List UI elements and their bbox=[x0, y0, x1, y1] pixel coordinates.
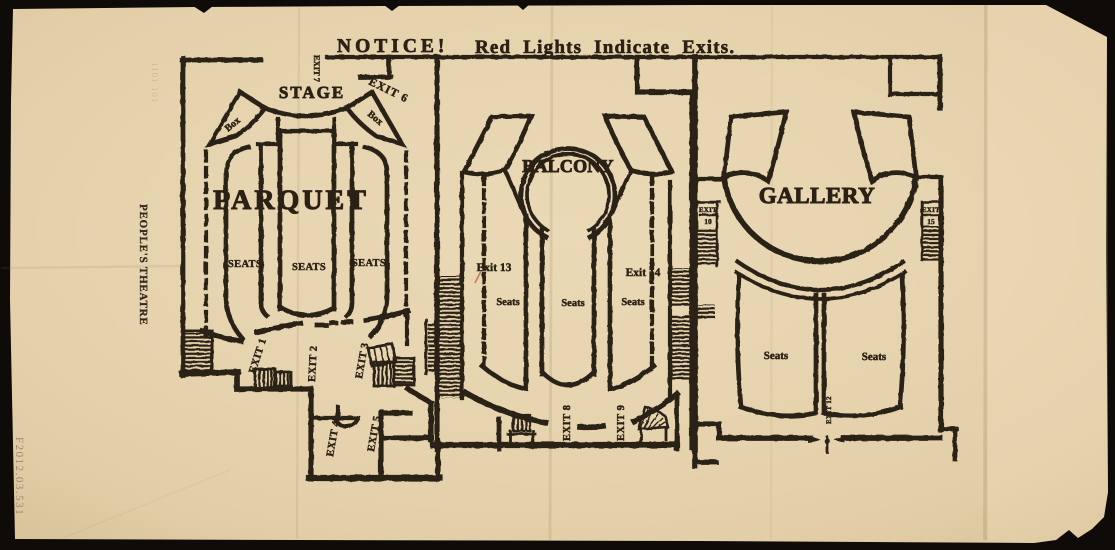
svg-text:EXIT 12: EXIT 12 bbox=[825, 396, 833, 424]
svg-text:15: 15 bbox=[927, 217, 935, 226]
svg-text:10: 10 bbox=[704, 217, 712, 226]
svg-text:SEATS: SEATS bbox=[352, 258, 386, 269]
svg-text:GALLERY: GALLERY bbox=[759, 183, 875, 208]
svg-text:EXIT 7: EXIT 7 bbox=[312, 55, 322, 83]
svg-text:EXIT: EXIT bbox=[922, 206, 940, 214]
svg-text:SEATS: SEATS bbox=[292, 262, 326, 273]
svg-text:EXIT: EXIT bbox=[699, 206, 717, 214]
svg-text:Seats: Seats bbox=[862, 351, 887, 363]
svg-text:PARQUET: PARQUET bbox=[213, 185, 369, 216]
svg-text:Seats: Seats bbox=[621, 297, 644, 308]
svg-text:Seats: Seats bbox=[496, 297, 519, 308]
svg-text:PEOPLE'S THEATRE: PEOPLE'S THEATRE bbox=[137, 204, 149, 326]
svg-text:EXIT 8: EXIT 8 bbox=[562, 405, 573, 441]
svg-text:NOTICE!: NOTICE! bbox=[337, 36, 448, 57]
svg-text:EXIT 9: EXIT 9 bbox=[616, 405, 627, 441]
svg-text:STAGE: STAGE bbox=[279, 83, 345, 102]
svg-text:Seats: Seats bbox=[764, 350, 789, 362]
svg-text:EXIT 2: EXIT 2 bbox=[307, 345, 320, 382]
svg-text:Exit 14: Exit 14 bbox=[626, 267, 661, 279]
svg-text:SEATS: SEATS bbox=[228, 259, 262, 270]
svg-text:Seats: Seats bbox=[561, 298, 584, 309]
svg-text:Exit 13: Exit 13 bbox=[477, 262, 512, 274]
svg-text:1101 101: 1101 101 bbox=[150, 62, 160, 103]
svg-text:BALCONY: BALCONY bbox=[522, 156, 613, 176]
svg-text:F2012.03.531: F2012.03.531 bbox=[13, 437, 25, 516]
